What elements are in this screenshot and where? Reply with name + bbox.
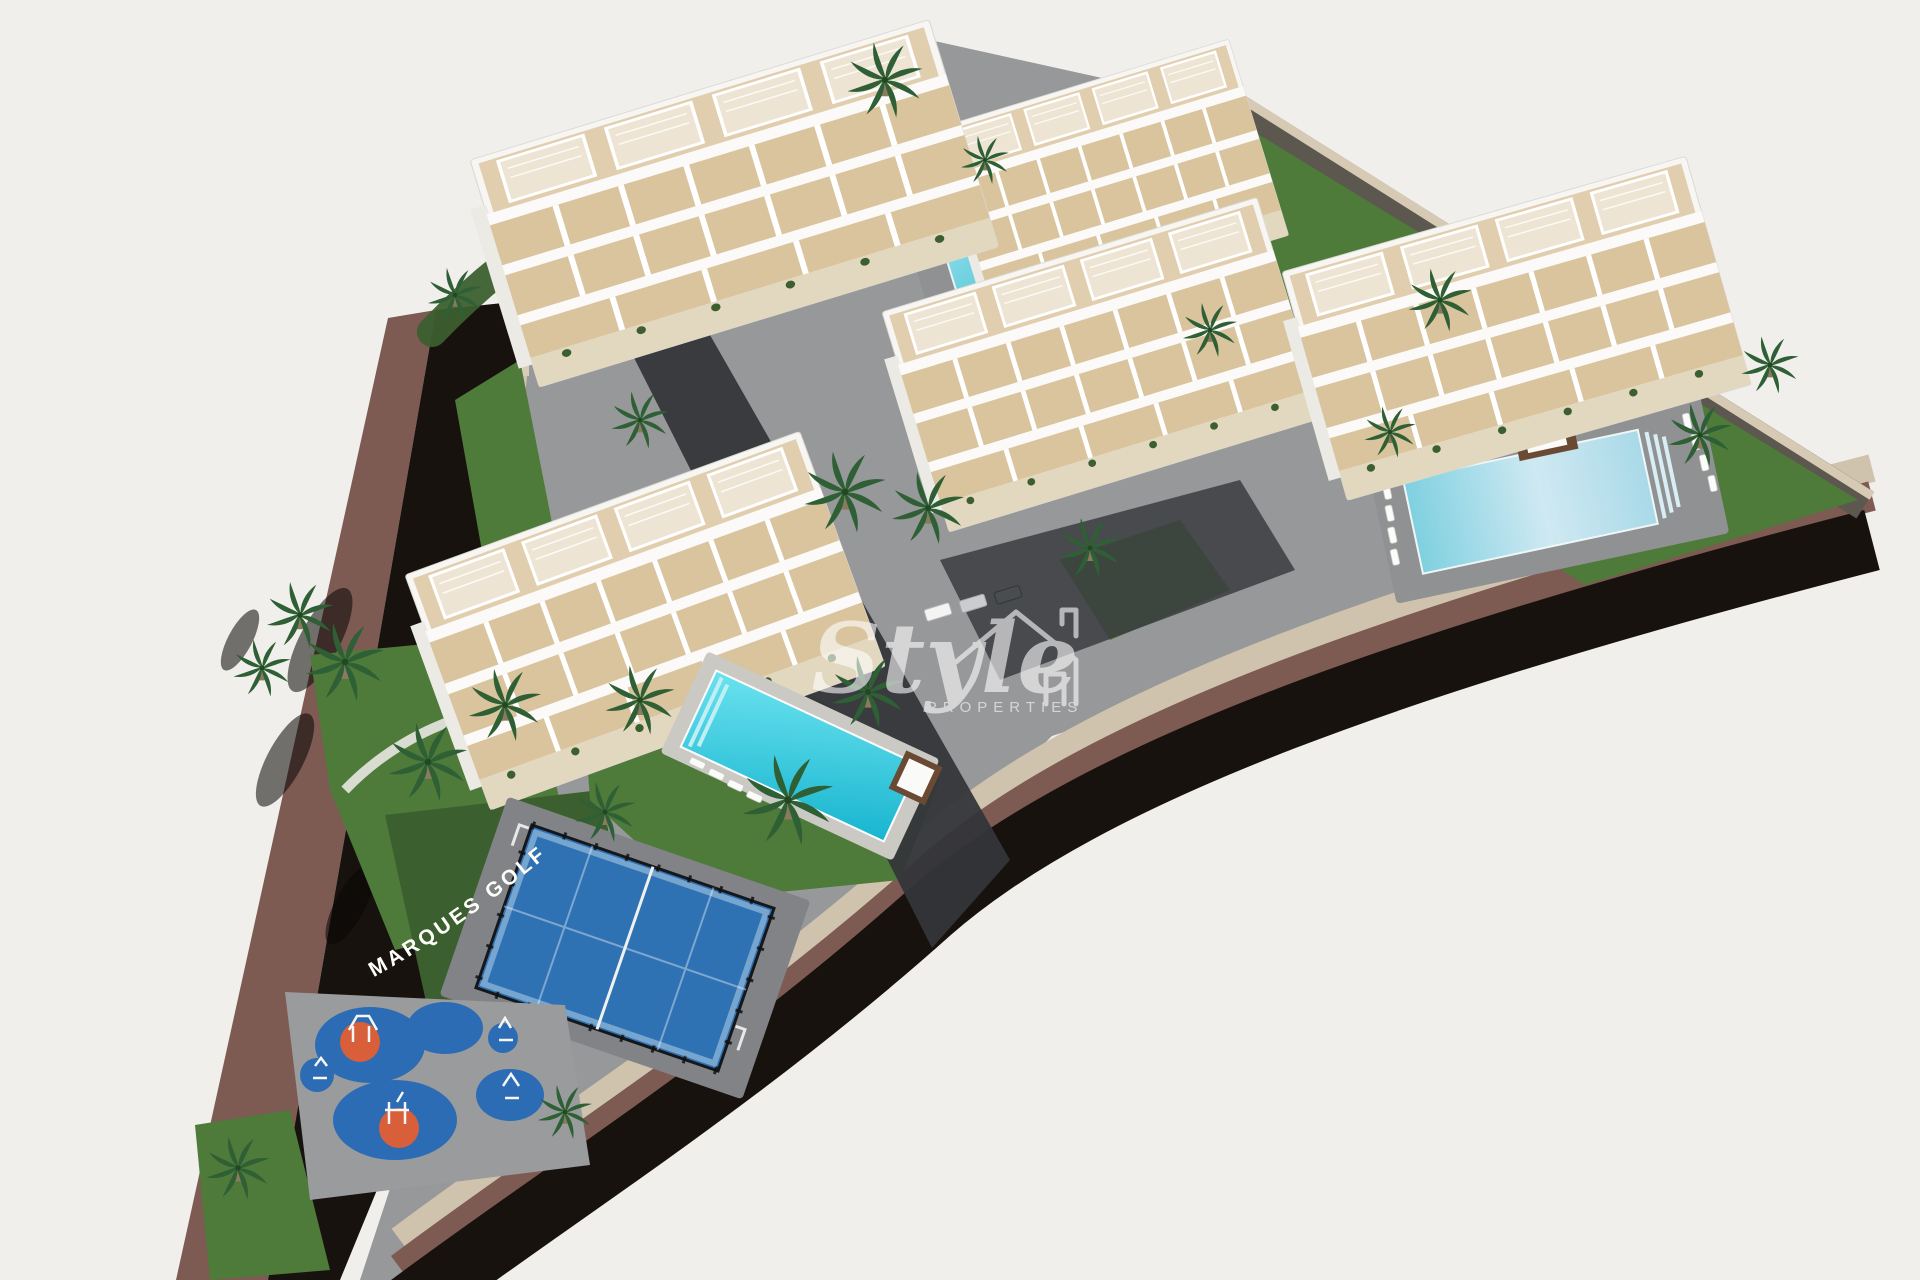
playground-circle-orange-1 — [340, 1022, 380, 1062]
watermark-subtitle: PROPERTIES — [927, 699, 1083, 716]
playground-circle-orange-2 — [379, 1108, 419, 1148]
playground — [285, 992, 590, 1200]
aerial-render: MARQUES GOLF Style PROPERTIES — [0, 0, 1920, 1280]
watermark: Style PROPERTIES — [812, 602, 1084, 716]
